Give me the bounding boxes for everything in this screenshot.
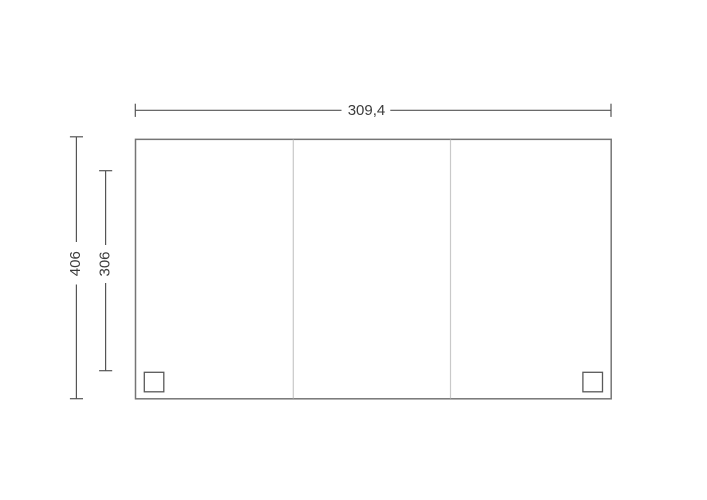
svg-text:306: 306 — [96, 251, 113, 276]
svg-text:406: 406 — [67, 251, 84, 276]
svg-text:309,4: 309,4 — [348, 102, 386, 119]
